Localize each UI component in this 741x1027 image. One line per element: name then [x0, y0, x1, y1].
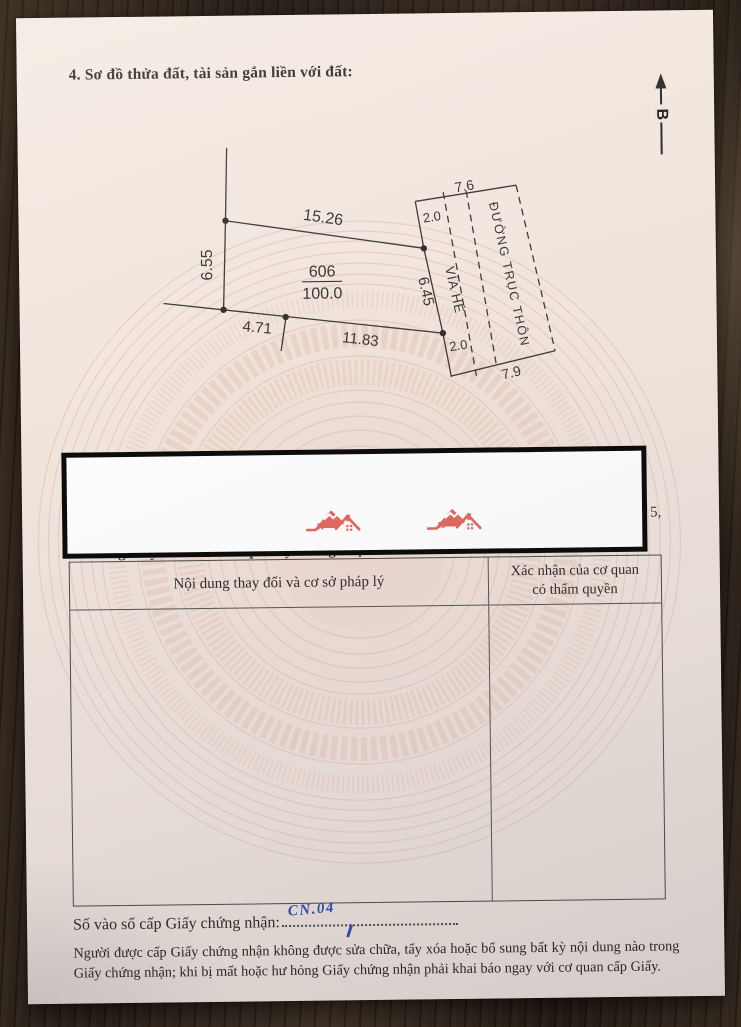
bottom-split-tick: [281, 319, 286, 351]
road-top-width-label: 7.6: [453, 176, 475, 195]
sidewalk-label: VỈA HÈ: [442, 265, 467, 315]
section4-title: 4. Sơ đồ thửa đất, tài sản gắn liền với …: [69, 63, 353, 84]
dotted-leader: CN.04: [282, 909, 458, 927]
dim-left-label: 6.55: [199, 249, 216, 280]
issue-number-label: Số vào sổ cấp Giấy chứng nhận:: [73, 914, 280, 934]
redaction-box: [61, 446, 647, 559]
changes-table: Nội dung thay đổi và cơ sở pháp lý Xác n…: [69, 554, 666, 906]
col-header-change-content: Nội dung thay đổi và cơ sở pháp lý: [70, 558, 490, 611]
dim-top-label: 15.26: [302, 207, 344, 229]
road-bottom-width-label: 7.9: [500, 362, 523, 382]
handwritten-issue-number: CN.04: [287, 900, 335, 921]
parcel-left-edge: [222, 221, 226, 310]
occluded-text-fragment: 5,: [650, 504, 661, 521]
pen-tick-mark: [346, 924, 352, 937]
photo-of-certificate: { "page": { "section4_title": "4. Sơ đồ …: [0, 0, 741, 1027]
boundary-extension-line: [225, 148, 228, 221]
parcel-diagram: 15.26 6.55 606 100.0 4.71 11.83 6.45 VỈA…: [145, 132, 598, 407]
house-logo-icon: [304, 507, 362, 534]
parcel-area-label: 100.0: [302, 285, 342, 302]
north-label: B: [653, 109, 670, 121]
col-header-authority-confirmation: Xác nhận của cơ quan có thẩm quyền: [489, 555, 662, 605]
authority-confirmation-cell-empty: [489, 603, 665, 900]
sidewalk-bottom-width-label: 2.0: [448, 337, 468, 355]
dim-bottom2-label: 11.83: [341, 329, 379, 350]
footer-note: Người được cấp Giấy chứng nhận không đượ…: [73, 936, 679, 984]
north-arrow-icon: B: [643, 72, 680, 160]
house-logo-icon: [425, 506, 483, 533]
issue-number-line: Số vào sổ cấp Giấy chứng nhận:CN.04: [73, 909, 458, 935]
road-label: ĐƯỜNG TRỤC THÔN: [486, 200, 533, 348]
parcel-number-label: 606: [309, 263, 336, 280]
dim-bottom1-label: 4.71: [242, 318, 273, 338]
dim-right-label: 6.45: [414, 275, 437, 307]
sidewalk-top-width-label: 2.0: [422, 208, 442, 226]
parcel-bottom-edge: [163, 300, 442, 336]
change-content-cell-empty: [70, 606, 493, 906]
certificate-page: 4. Sơ đồ thửa đất, tài sản gắn liền với …: [16, 10, 725, 1004]
